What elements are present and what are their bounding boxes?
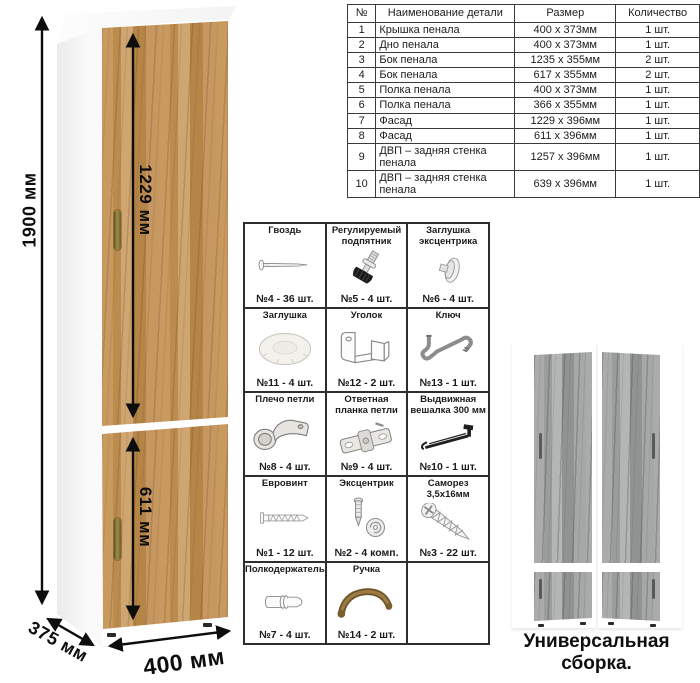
- hardware-name: Ключ: [436, 311, 461, 322]
- hardware-name: Заглушка: [263, 311, 307, 322]
- cell-quantity: 1 шт.: [616, 23, 700, 38]
- col-header-size: Размер: [515, 5, 616, 23]
- hardware-cell-cam-cover: Заглушка эксцентрика №6 - 4 шт.: [408, 224, 488, 307]
- hardware-cell-euro-screw: Евровинт №1 - 12 шт.: [245, 477, 325, 561]
- hardware-name: Эксцентрик: [339, 479, 394, 490]
- variant-foot: [608, 622, 614, 625]
- hardware-qty: №9 - 4 шт.: [341, 461, 393, 473]
- width-dimension-label: 400 мм: [142, 643, 227, 681]
- hinge-arm-icon: [248, 406, 322, 461]
- cell-quantity: 1 шт.: [616, 170, 700, 197]
- cell-size: 366 х 355мм: [515, 98, 616, 113]
- cell-size: 1229 х 396мм: [515, 113, 616, 128]
- upper-door: [102, 20, 229, 427]
- cell-size: 1235 х 355мм: [515, 53, 616, 68]
- hardware-name: Саморез 3,5х16мм: [409, 479, 487, 500]
- hardware-name: Заглушка эксцентрика: [409, 226, 487, 247]
- hardware-name: Гвоздь: [268, 226, 301, 237]
- lower-door-handle: [114, 518, 121, 560]
- euro-screw-icon: [248, 490, 322, 547]
- pullout-hanger-icon: [411, 416, 485, 461]
- hardware-qty: №10 - 1 шт.: [419, 461, 476, 473]
- cell-number: 2: [348, 38, 376, 53]
- self-tapping-screw-icon: [411, 500, 485, 547]
- cell-number: 8: [348, 128, 376, 143]
- cam-lock-icon: [329, 490, 403, 547]
- col-header-number: №: [348, 5, 376, 23]
- hardware-cell-nail: Гвоздь №4 - 36 шт.: [245, 224, 325, 307]
- lower-door-dimension-label: 611 мм: [135, 487, 155, 547]
- hardware-qty: №5 - 4 шт.: [341, 293, 393, 305]
- cell-number: 1: [348, 23, 376, 38]
- variant-foot: [650, 624, 656, 627]
- lower-door: [102, 424, 229, 630]
- height-dimension-label: 1900 мм: [20, 172, 41, 247]
- cell-number: 10: [348, 170, 376, 197]
- table-row: 3Бок пенала1235 х 355мм2 шт.: [348, 53, 700, 68]
- hardware-name: Регулируемый подпятник: [328, 226, 406, 247]
- cell-size: 1257 х 396мм: [515, 143, 616, 170]
- corner-bracket-icon: [329, 322, 403, 377]
- shelf-pin-icon: [248, 576, 322, 629]
- cell-name: Фасад: [376, 128, 515, 143]
- table-row: 4Бок пенала617 х 355мм2 шт.: [348, 68, 700, 83]
- cell-quantity: 1 шт.: [616, 113, 700, 128]
- handle-icon: [329, 576, 403, 629]
- variant-door-handle: [539, 433, 542, 459]
- cell-name: Полка пенала: [376, 98, 515, 113]
- hardware-qty: №1 - 12 шт.: [256, 547, 313, 559]
- table-row: 7Фасад1229 х 396мм1 шт.: [348, 113, 700, 128]
- hardware-grid: Гвоздь №4 - 36 шт. Регулируемый подпятни…: [243, 222, 490, 645]
- hardware-cell-shelf-pin: Полкодержатель №7 - 4 шт.: [245, 563, 325, 643]
- hardware-cell-handle: Ручка №14 - 2 шт.: [327, 563, 407, 643]
- parts-table: № Наименование детали Размер Количество …: [347, 4, 700, 198]
- hardware-qty: №11 - 4 шт.: [256, 377, 313, 389]
- variant-door-handle: [539, 579, 542, 599]
- cell-quantity: 1 шт.: [616, 128, 700, 143]
- table-row: 1Крышка пенала400 х 373мм1 шт.: [348, 23, 700, 38]
- cell-size: 639 х 396мм: [515, 170, 616, 197]
- cell-name: Бок пенала: [376, 53, 515, 68]
- variant-door-handle: [652, 579, 655, 599]
- cell-name: Полка пенала: [376, 83, 515, 98]
- cell-quantity: 2 шт.: [616, 68, 700, 83]
- cell-number: 3: [348, 53, 376, 68]
- cell-number: 5: [348, 83, 376, 98]
- adjustable-foot-icon: [329, 247, 403, 293]
- hardware-name: Плечо петли: [255, 395, 314, 406]
- cell-number: 7: [348, 113, 376, 128]
- cell-name: Крышка пенала: [376, 23, 515, 38]
- hardware-qty: №6 - 4 шт.: [422, 293, 474, 305]
- hardware-cell-adjustable-foot: Регулируемый подпятник №5 - 4 шт.: [327, 224, 407, 307]
- variant-lower-door: [534, 572, 592, 621]
- cell-size: 400 х 373мм: [515, 83, 616, 98]
- cell-name: ДВП – задняя стенка пенала: [376, 143, 515, 170]
- cell-name: Фасад: [376, 113, 515, 128]
- hardware-qty: №13 - 1 шт.: [419, 377, 476, 389]
- hardware-cell-key: Ключ №13 - 1 шт.: [408, 309, 488, 391]
- hardware-name: Полкодержатель: [245, 565, 325, 576]
- hardware-name: Выдвижная вешалка 300 мм: [409, 395, 487, 416]
- table-row: 6Полка пенала366 х 355мм1 шт.: [348, 98, 700, 113]
- hardware-cell-empty: [408, 563, 488, 643]
- cabinet-foot: [203, 623, 212, 627]
- hardware-cell-hinge-arm: Плечо петли №8 - 4 шт.: [245, 393, 325, 475]
- table-row: 9ДВП – задняя стенка пенала1257 х 396мм1…: [348, 143, 700, 170]
- variant-foot: [538, 624, 544, 627]
- col-header-quantity: Количество: [616, 5, 700, 23]
- table-row: 2Дно пенала400 х 373мм1 шт.: [348, 38, 700, 53]
- cell-name: Дно пенала: [376, 38, 515, 53]
- hardware-qty: №7 - 4 шт.: [259, 629, 311, 641]
- hinge-plate-icon: [329, 416, 403, 461]
- hardware-name: Уголок: [351, 311, 382, 322]
- cabinet-side-panel: [57, 27, 102, 647]
- hardware-cell-corner-bracket: Уголок №12 - 2 шт.: [327, 309, 407, 391]
- table-row: 5Полка пенала400 х 373мм1 шт.: [348, 83, 700, 98]
- cell-number: 9: [348, 143, 376, 170]
- hardware-qty: №14 - 2 шт.: [338, 629, 395, 641]
- universal-assembly-caption: Универсальная сборка.: [493, 631, 700, 675]
- cell-quantity: 2 шт.: [616, 53, 700, 68]
- variant-upper-door: [534, 352, 592, 563]
- cell-size: 400 х 373мм: [515, 23, 616, 38]
- hardware-name: Ответная планка петли: [328, 395, 406, 416]
- cell-quantity: 1 шт.: [616, 38, 700, 53]
- hardware-cell-cap: Заглушка №11 - 4 шт.: [245, 309, 325, 391]
- hardware-qty: №3 - 22 шт.: [419, 547, 476, 559]
- cell-name: Бок пенала: [376, 68, 515, 83]
- cell-quantity: 1 шт.: [616, 143, 700, 170]
- cell-number: 6: [348, 98, 376, 113]
- variant-foot: [580, 622, 586, 625]
- variant-door-handle: [652, 433, 655, 459]
- hardware-qty: №2 - 4 комп.: [334, 547, 398, 559]
- variant-cabinet-left: [512, 343, 596, 628]
- hardware-cell-pullout-hanger: Выдвижная вешалка 300 мм №10 - 1 шт.: [408, 393, 488, 475]
- col-header-name: Наименование детали: [376, 5, 515, 23]
- upper-door-dimension-label: 1229 мм: [135, 164, 155, 235]
- cell-quantity: 1 шт.: [616, 83, 700, 98]
- table-row: 8Фасад611 х 396мм1 шт.: [348, 128, 700, 143]
- hardware-name: Евровинт: [262, 479, 308, 490]
- hardware-cell-hinge-plate: Ответная планка петли №9 - 4 шт.: [327, 393, 407, 475]
- cap-icon: [248, 322, 322, 377]
- cell-size: 400 х 373мм: [515, 38, 616, 53]
- cell-quantity: 1 шт.: [616, 98, 700, 113]
- cell-number: 4: [348, 68, 376, 83]
- key-icon: [411, 322, 485, 377]
- cell-name: ДВП – задняя стенка пенала: [376, 170, 515, 197]
- hardware-name: Ручка: [353, 565, 380, 576]
- hardware-qty: №8 - 4 шт.: [259, 461, 311, 473]
- hardware-qty: №4 - 36 шт.: [256, 293, 313, 305]
- cell-size: 617 х 355мм: [515, 68, 616, 83]
- cam-cover-icon: [411, 247, 485, 293]
- variant-cabinet-right: [598, 343, 682, 628]
- hardware-cell-cam-lock: Эксцентрик №2 - 4 комп.: [327, 477, 407, 561]
- table-row: 10ДВП – задняя стенка пенала639 х 396мм1…: [348, 170, 700, 197]
- hardware-qty: №12 - 2 шт.: [338, 377, 395, 389]
- cell-size: 611 х 396мм: [515, 128, 616, 143]
- nail-icon: [248, 237, 322, 293]
- cabinet-foot: [107, 633, 116, 637]
- hardware-cell-self-tapping-screw: Саморез 3,5х16мм №3 - 22 шт.: [408, 477, 488, 561]
- assembly-sheet: 1900 мм 1229 мм 611 мм 375 мм 400 мм № Н…: [0, 0, 700, 683]
- parts-table-header: № Наименование детали Размер Количество: [348, 5, 700, 23]
- upper-door-handle: [114, 210, 121, 250]
